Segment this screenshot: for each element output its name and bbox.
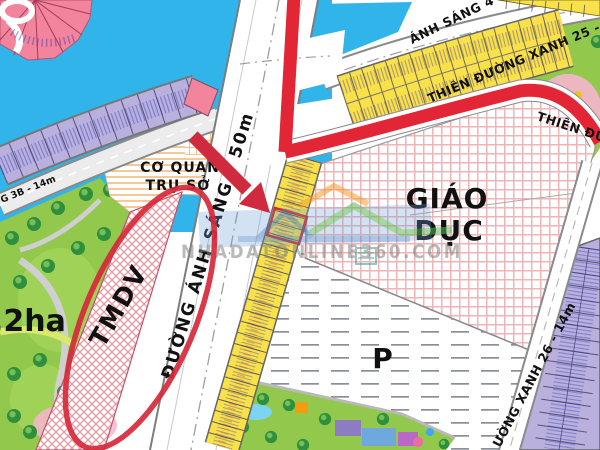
label-parking: P [372, 342, 394, 375]
watermark-text: NHADATONLINE360.COM [181, 241, 463, 263]
zoning-map: CƠ QUAN TRỤ SỞ GIÁO DỤC P ,2ha TMDV ĐƯỜN… [0, 0, 600, 450]
label-area: ,2ha [0, 304, 66, 339]
label-co-quan-line1: CƠ QUAN [140, 160, 220, 176]
